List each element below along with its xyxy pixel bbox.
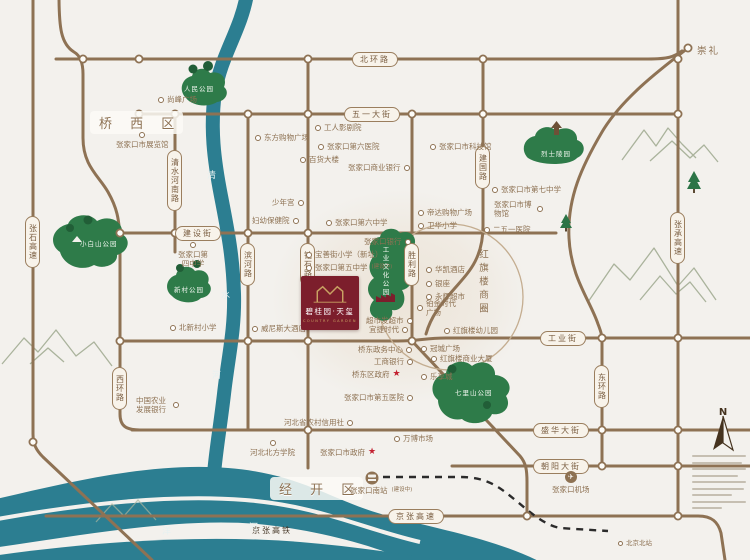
no5-middle-school-icon	[306, 265, 312, 271]
no4-middle-school-label: 张家口第四中学	[176, 250, 210, 269]
disclaimer-line	[692, 468, 746, 470]
project-marker: 碧桂园·天玺 COUNTRY GARDEN	[301, 276, 359, 330]
poi-shangfeng-plaza: 尚峰广场	[158, 95, 197, 104]
dida-mall-label: 帝达购物广场	[427, 208, 472, 217]
river-label-qingshui-river-1: 清	[207, 168, 216, 181]
qiaodong-admin-center-icon	[406, 347, 412, 353]
poi-no6-middle-school: 张家口第六中学	[326, 218, 388, 227]
road-label-jianshejie: 建设街	[175, 226, 221, 241]
pine-tree-icon	[687, 171, 701, 193]
venice-hotel-label: 威尼斯大酒店	[261, 324, 306, 333]
poi-qiaodong-government: 桥东区政府★	[352, 370, 401, 379]
hongqilou-kindergarten-label: 红旗楼幼儿园	[453, 326, 498, 335]
qiaodong-government-label: 桥东区政府	[352, 370, 390, 379]
no6-middle-school-label: 张家口第六中学	[335, 218, 388, 227]
disclaimer-line	[692, 462, 742, 464]
poi-dida-mall: 帝达购物广场	[418, 208, 472, 217]
park-label-industrial-culture-park: 工业文化公园	[380, 246, 390, 297]
poi-exhibition-hall: 张家口市展览馆	[116, 132, 169, 149]
zjk-bank-icon	[405, 239, 411, 245]
poi-city-government: 张家口市政府★	[320, 448, 376, 457]
poi-science-museum: 张家口市科技馆	[430, 142, 492, 151]
park-label-martyrs-cemetery: 烈士陵园	[541, 148, 571, 158]
poi-hospital-251: 二五一医院	[484, 225, 531, 234]
hongqilou-tower-label: 红旗楼商业大厦	[440, 354, 493, 363]
baoshanjie-primary-icon	[306, 252, 312, 258]
qiaodong-government-icon: ★	[393, 370, 401, 379]
hebei-north-university-icon	[270, 440, 276, 446]
poi-no6-hospital: 张家口第六医院	[318, 142, 380, 151]
compass-needle-icon	[713, 416, 733, 450]
poi-commercial-bank: 张家口商业银行	[348, 163, 410, 172]
poi-baoshanjie-primary: 宝善街小学（新址）	[306, 250, 383, 259]
yijie-times-icon	[402, 327, 408, 333]
poi-platinum-times-plaza: 铂金时代广场	[417, 299, 462, 318]
rural-credit-union-label: 河北省农村信用社	[284, 418, 344, 427]
poi-department-store: 百货大楼	[300, 155, 339, 164]
road-label-xihuanlu: 西环路	[112, 367, 127, 410]
hospital-251-label: 二五一医院	[493, 225, 531, 234]
chaoshifa-supermarket-icon	[407, 318, 413, 324]
beixincun-primary-icon	[170, 325, 176, 331]
science-museum-icon	[430, 144, 436, 150]
pagoda-icon	[554, 127, 559, 135]
river-label-yang-river-2: 河	[249, 520, 258, 533]
youth-palace-label: 少年宫	[272, 198, 295, 207]
road-label-shenglilu: 胜利路	[404, 243, 419, 286]
city-museum-label: 张家口市博物馆	[494, 200, 534, 219]
road-west-ring	[59, 0, 140, 430]
venice-hotel-icon	[252, 326, 258, 332]
river-label-qingshui-river-2: 水	[221, 288, 230, 301]
huakai-hotel-icon	[426, 267, 432, 273]
poi-beixincun-primary: 北新村小学	[170, 323, 217, 332]
zjk-bank-label: 张家口银行	[364, 237, 402, 246]
hospital-251-icon	[484, 227, 490, 233]
wanbo-market-label: 万博市场	[403, 434, 433, 443]
disclaimer-line	[692, 481, 746, 483]
qiaodong-admin-center-label: 桥东政务中心	[358, 345, 403, 354]
chaoshifa-supermarket-label: 超市发超市	[366, 316, 404, 325]
zjk-airport-label: 张家口机场	[552, 485, 590, 494]
dongfang-mall-label: 东方购物广场	[264, 133, 309, 142]
poi-maternity-hospital: 妇幼保健院	[252, 216, 299, 225]
poi-no7-middle-school: 张家口市第七中学	[492, 185, 561, 194]
map-artwork	[0, 0, 750, 560]
poi-beijing-north-station: 北京北站	[618, 539, 652, 547]
poi-youth-palace: 少年宫	[272, 198, 304, 207]
beijing-north-station-icon	[618, 541, 623, 546]
road-label-beihuanlu: 北环路	[352, 52, 398, 67]
no7-middle-school-label: 张家口市第七中学	[501, 185, 561, 194]
poi-guancheng-plaza: 冠城广场	[421, 344, 460, 353]
hongqilou-kindergarten-icon	[444, 328, 450, 334]
poi-hongqilou-kindergarten: 红旗楼幼儿园	[444, 326, 498, 335]
road-label-zhangchenggaosu: 张承高速	[670, 212, 685, 264]
road-label-donghuanlu: 东环路	[594, 365, 609, 408]
disclaimer-text	[692, 455, 748, 514]
river-label-qingshui-river-3: 河	[212, 368, 221, 381]
poi-zjk-airport: ✈张家口机场	[552, 471, 590, 494]
baoshanjie-primary-label: 宝善街小学（新址）	[315, 250, 383, 259]
no6-hospital-label: 张家口第六医院	[327, 142, 380, 151]
poi-weihua-primary: 卫华小学	[418, 221, 457, 230]
weihua-primary-icon	[418, 223, 424, 229]
maternity-hospital-label: 妇幼保健院	[252, 216, 290, 225]
no5-middle-school-label: 张家口第五中学	[315, 263, 368, 272]
poi-huakai-hotel: 华凯酒店	[426, 265, 465, 274]
road-label-zhangshigaosu: 张石高速	[25, 216, 40, 268]
poi-no4-middle-school: 张家口第四中学	[176, 242, 210, 269]
hongqilou-tower-icon	[431, 356, 437, 362]
no5-hospital-label: 张家口市第五医院	[344, 393, 404, 402]
road-label-binhelu: 滨河路	[240, 243, 255, 286]
poi-zjk-south-station: 张家口南站(建设中)	[350, 486, 412, 495]
city-government-icon: ★	[368, 448, 376, 457]
exhibition-hall-icon	[139, 132, 145, 138]
poi-chaoshifa-supermarket: 超市发超市	[366, 316, 413, 325]
rural-credit-union-icon	[347, 420, 353, 426]
poi-qiaodong-admin-center: 桥东政务中心	[358, 345, 412, 354]
youth-palace-icon	[298, 200, 304, 206]
zjk-south-station-sub: (建设中)	[392, 487, 413, 494]
compass: N	[706, 400, 740, 419]
exhibition-hall-label: 张家口市展览馆	[116, 140, 169, 149]
martyrs-cemetery-shape	[524, 127, 584, 164]
city-government-label: 张家口市政府	[320, 448, 365, 457]
poi-city-museum: 张家口市博物馆	[494, 200, 543, 219]
project-name: 碧桂园·天玺	[306, 306, 355, 317]
commercial-bank-label: 张家口商业银行	[348, 163, 401, 172]
road-label-qingshuihenanlu: 清水河南路	[167, 150, 182, 211]
yinzuo-label: 银座	[435, 279, 450, 288]
location-map: 桥 西 区 经 开 区 红旗楼商圈 碧桂园·天玺 COUNTRY GARDEN …	[0, 0, 750, 560]
commercial-bank-icon	[404, 165, 410, 171]
shangfeng-plaza-icon	[158, 97, 164, 103]
science-museum-label: 张家口市科技馆	[439, 142, 492, 151]
workers-theater-icon	[315, 125, 321, 131]
lexiangcheng-label: 乐享城	[430, 372, 453, 381]
guancheng-plaza-label: 冠城广场	[430, 344, 460, 353]
poi-hebei-north-university: 河北北方学院	[250, 440, 295, 457]
lexiangcheng-icon	[421, 374, 427, 380]
workers-theater-label: 工人影剧院	[324, 123, 362, 132]
no5-hospital-icon	[407, 395, 413, 401]
park-label-qilishan-park: 七里山公园	[455, 387, 493, 397]
poi-lexiangcheng: 乐享城	[421, 372, 453, 381]
poi-venice-hotel: 威尼斯大酒店	[252, 324, 306, 333]
disclaimer-line	[692, 475, 738, 477]
south-station-icon	[366, 472, 379, 485]
platinum-times-plaza-icon	[417, 305, 423, 311]
poi-yijie-times: 宜捷时代	[369, 325, 408, 334]
no4-middle-school-icon	[190, 242, 196, 248]
disclaimer-line	[692, 507, 722, 509]
agri-development-bank-label: 中国农业发展银行	[136, 396, 170, 415]
poi-agri-development-bank: 中国农业发展银行	[136, 396, 179, 415]
disclaimer-line	[692, 488, 744, 490]
zjk-airport-icon: ✈	[565, 471, 577, 483]
zjk-south-station-label: 张家口南站	[350, 486, 388, 495]
disclaimer-line	[692, 455, 746, 457]
poi-icbc-bank: 工商银行	[374, 357, 413, 366]
department-store-icon	[300, 157, 306, 163]
chongli-label: 崇礼	[697, 46, 720, 58]
wanbo-market-icon	[394, 436, 400, 442]
poi-no5-hospital: 张家口市第五医院	[344, 393, 413, 402]
hebei-north-university-label: 河北北方学院	[250, 448, 295, 457]
poi-chongli: 崇礼	[697, 46, 720, 58]
poi-dongfang-mall: 东方购物广场	[255, 133, 309, 142]
department-store-label: 百货大楼	[309, 155, 339, 164]
disclaimer-line	[692, 494, 732, 496]
river-label-yang-river-1: 洋	[162, 524, 171, 537]
road-label-jingzhanggaosu: 京张高速	[388, 509, 444, 524]
icbc-bank-icon	[407, 359, 413, 365]
park-label-xincun-park: 新村公园	[174, 284, 204, 294]
dongfang-mall-icon	[255, 135, 261, 141]
dida-mall-icon	[418, 210, 424, 216]
project-logo-icon	[311, 284, 349, 304]
platinum-times-plaza-label: 铂金时代广场	[426, 299, 462, 318]
park-label-renmin-park: 人民公园	[184, 83, 214, 93]
road-label-gongyejie: 工业街	[540, 331, 586, 346]
beixincun-primary-label: 北新村小学	[179, 323, 217, 332]
icbc-bank-label: 工商银行	[374, 357, 404, 366]
huakai-hotel-label: 华凯酒店	[435, 265, 465, 274]
city-museum-icon	[537, 206, 543, 212]
agri-development-bank-icon	[173, 402, 179, 408]
poi-rural-credit-union: 河北省农村信用社	[284, 418, 353, 427]
no6-hospital-icon	[318, 144, 324, 150]
park-label-xiaobaishan-park: 小白山公园	[80, 238, 118, 248]
project-name-en: COUNTRY GARDEN	[303, 319, 357, 323]
poi-workers-theater: 工人影剧院	[315, 123, 362, 132]
road-label-wuyidajie: 五一大街	[344, 107, 400, 122]
poi-zjk-bank: 张家口银行	[364, 237, 411, 246]
weihua-primary-label: 卫华小学	[427, 221, 457, 230]
no6-middle-school-icon	[326, 220, 332, 226]
guancheng-plaza-icon	[421, 346, 427, 352]
poi-wanbo-market: 万博市场	[394, 434, 433, 443]
poi-hongqilou-tower: 红旗楼商业大厦	[431, 354, 493, 363]
poi-yinzuo: 银座	[426, 279, 450, 288]
no7-middle-school-icon	[492, 187, 498, 193]
compass-north-label: N	[719, 407, 727, 418]
maternity-hospital-icon	[293, 218, 299, 224]
shangfeng-plaza-label: 尚峰广场	[167, 95, 197, 104]
road-label-jianguolu: 建国路	[475, 146, 490, 189]
road-label-shenghuadajie: 盛华大街	[533, 423, 589, 438]
yijie-times-label: 宜捷时代	[369, 325, 399, 334]
hongqilou-business-circle-label: 红旗楼商圈	[475, 249, 489, 317]
district-label-qiaoxi: 桥 西 区	[90, 111, 183, 134]
yinzuo-icon	[426, 281, 432, 287]
disclaimer-line	[692, 501, 746, 503]
beijing-north-station-label: 北京北站	[626, 539, 652, 547]
